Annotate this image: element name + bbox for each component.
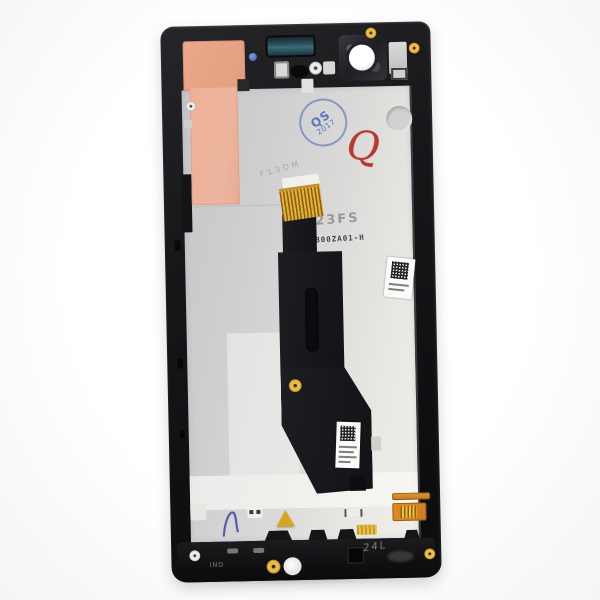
pencil-scribble: 24L <box>362 540 388 554</box>
handwritten-q-mark: Q <box>345 125 381 168</box>
lcd-assembly: QS 2017 Q F13DM 23FS 1B00ZA01-H <box>160 21 442 583</box>
ind-marking: IND <box>209 561 224 569</box>
speaker-hole <box>283 557 301 575</box>
left-rail-pad <box>184 120 192 128</box>
blue-marker-squiggle <box>220 509 249 538</box>
sensor-bracket <box>274 61 289 78</box>
small-white-component <box>323 61 335 74</box>
copper-shield-sticker-top <box>183 40 246 91</box>
datamatrix-code <box>340 426 355 441</box>
center-white-tab <box>301 79 313 93</box>
earpiece-mesh <box>267 37 313 56</box>
product-photo-page: { "scene": { "description": "Product pho… <box>0 0 600 600</box>
datamatrix-code <box>390 261 409 280</box>
rail-notch <box>180 430 185 438</box>
bottom-chassis-band: IND 24L <box>177 537 436 582</box>
lower-bright-strip <box>190 472 419 511</box>
gold-foil-triangle <box>276 510 294 526</box>
yellow-flex-connector <box>357 524 377 534</box>
grey-pull-tab <box>371 436 381 450</box>
contact-piece <box>247 507 262 518</box>
gold-contact-pad <box>400 506 416 518</box>
barcode-label-right <box>384 257 416 300</box>
barcode-label-flex <box>335 422 360 469</box>
copper-shield-sticker-bottom <box>189 86 239 205</box>
flex-component-square <box>350 477 366 491</box>
top-right-component <box>391 68 407 80</box>
grey-smudge <box>387 551 413 563</box>
gold-ribbon-contacts <box>279 183 324 222</box>
rail-notch <box>175 241 181 251</box>
orange-flex-strip <box>392 492 430 500</box>
bottom-left-bracket <box>190 504 206 520</box>
copper-sticker-notch <box>237 79 249 91</box>
screw-bottom-center-gold <box>266 559 280 573</box>
port-opening <box>347 547 364 564</box>
screw-bottom-left-silver <box>189 550 200 561</box>
flex-cable-slot <box>305 288 319 352</box>
orange-flex-connector <box>392 502 426 521</box>
small-connector-bar <box>344 509 362 517</box>
screw-bottom-right-gold <box>424 548 435 559</box>
rail-notch <box>177 358 183 368</box>
